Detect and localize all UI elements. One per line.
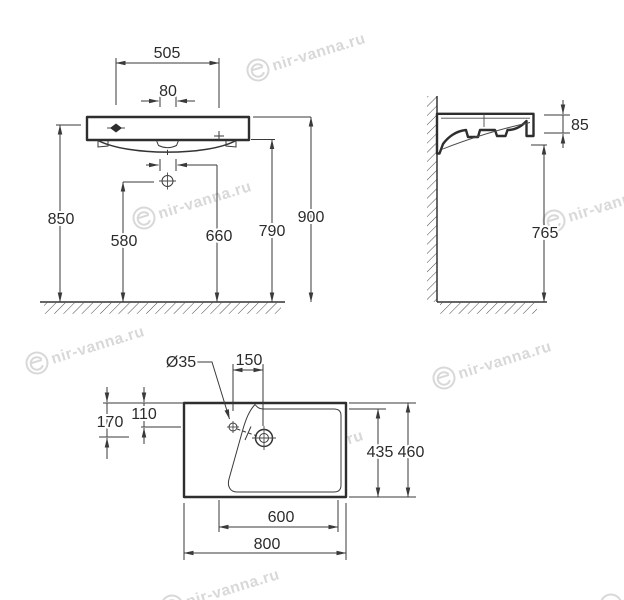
dimension-580: 580 [111, 182, 154, 302]
watermark-logo-icon: nir-vanna.ru [245, 27, 368, 83]
watermark-text: nir-vanna.ru [184, 566, 282, 600]
watermark-text: nir-vanna.ru [456, 338, 554, 383]
side-view: 85 765 [427, 96, 589, 314]
watermark-text: nir-vanna.ru [49, 323, 147, 368]
dim-800-label: 800 [254, 536, 281, 553]
drain-boss [157, 141, 179, 148]
watermark-text: nir-vanna.ru [270, 30, 368, 75]
dimension-170: 170 [97, 387, 129, 459]
watermark-logo-icon: nir-vanna.ru [431, 335, 554, 391]
top-view: Ø35 150 110 170 [97, 352, 425, 560]
watermark-logo-icon: nir-vanna.ru [24, 320, 147, 376]
siphon-center-symbol [159, 173, 176, 190]
dimension-660: 660 [146, 159, 232, 302]
dim-d35-label: Ø35 [166, 354, 196, 371]
dimension-80: 80 [141, 83, 195, 107]
dim-80-label: 80 [159, 83, 177, 100]
dim-580-label: 580 [111, 233, 138, 250]
dimension-600: 600 [219, 500, 338, 532]
dimension-790: 790 [251, 140, 285, 303]
floor-hatching [44, 303, 281, 314]
dim-170-label: 170 [97, 414, 124, 431]
watermark-text: nir-vanna.ru [566, 181, 624, 226]
dim-460-label: 460 [398, 444, 425, 461]
basin-side-profile [437, 114, 534, 154]
drawing-svg: nir-vanna.ru nir-vanna.ru nir-vanna.ru n… [0, 0, 624, 600]
washbasin-dimension-drawing: nir-vanna.ru nir-vanna.ru nir-vanna.ru n… [0, 0, 624, 600]
front-view: 505 80 850 580 [40, 45, 324, 314]
watermark-logo-icon: nir-vanna.ru [131, 175, 254, 231]
dim-150-label: 150 [236, 352, 263, 369]
dim-505-label: 505 [154, 45, 181, 62]
watermark-logo-icon [598, 592, 624, 600]
basin-top-outline [184, 403, 346, 497]
dim-765-label: 765 [532, 225, 559, 242]
dimension-850: 850 [48, 125, 81, 302]
dim-790-label: 790 [259, 223, 286, 240]
dim-600-label: 600 [268, 509, 295, 526]
dimension-800: 800 [184, 503, 346, 560]
dim-110-label: 110 [131, 406, 157, 423]
dim-435-label: 435 [367, 444, 394, 461]
dimension-900: 900 [253, 117, 324, 302]
floor-hatching [440, 303, 537, 314]
dim-850-label: 850 [48, 211, 75, 228]
watermark-logo-icon: nir-vanna.ru [159, 563, 282, 600]
dim-900-label: 900 [298, 209, 325, 226]
dim-85-label: 85 [571, 117, 589, 134]
dimension-85: 85 [544, 100, 589, 148]
wall-hatching [427, 96, 437, 302]
dim-660-label: 660 [206, 228, 233, 245]
